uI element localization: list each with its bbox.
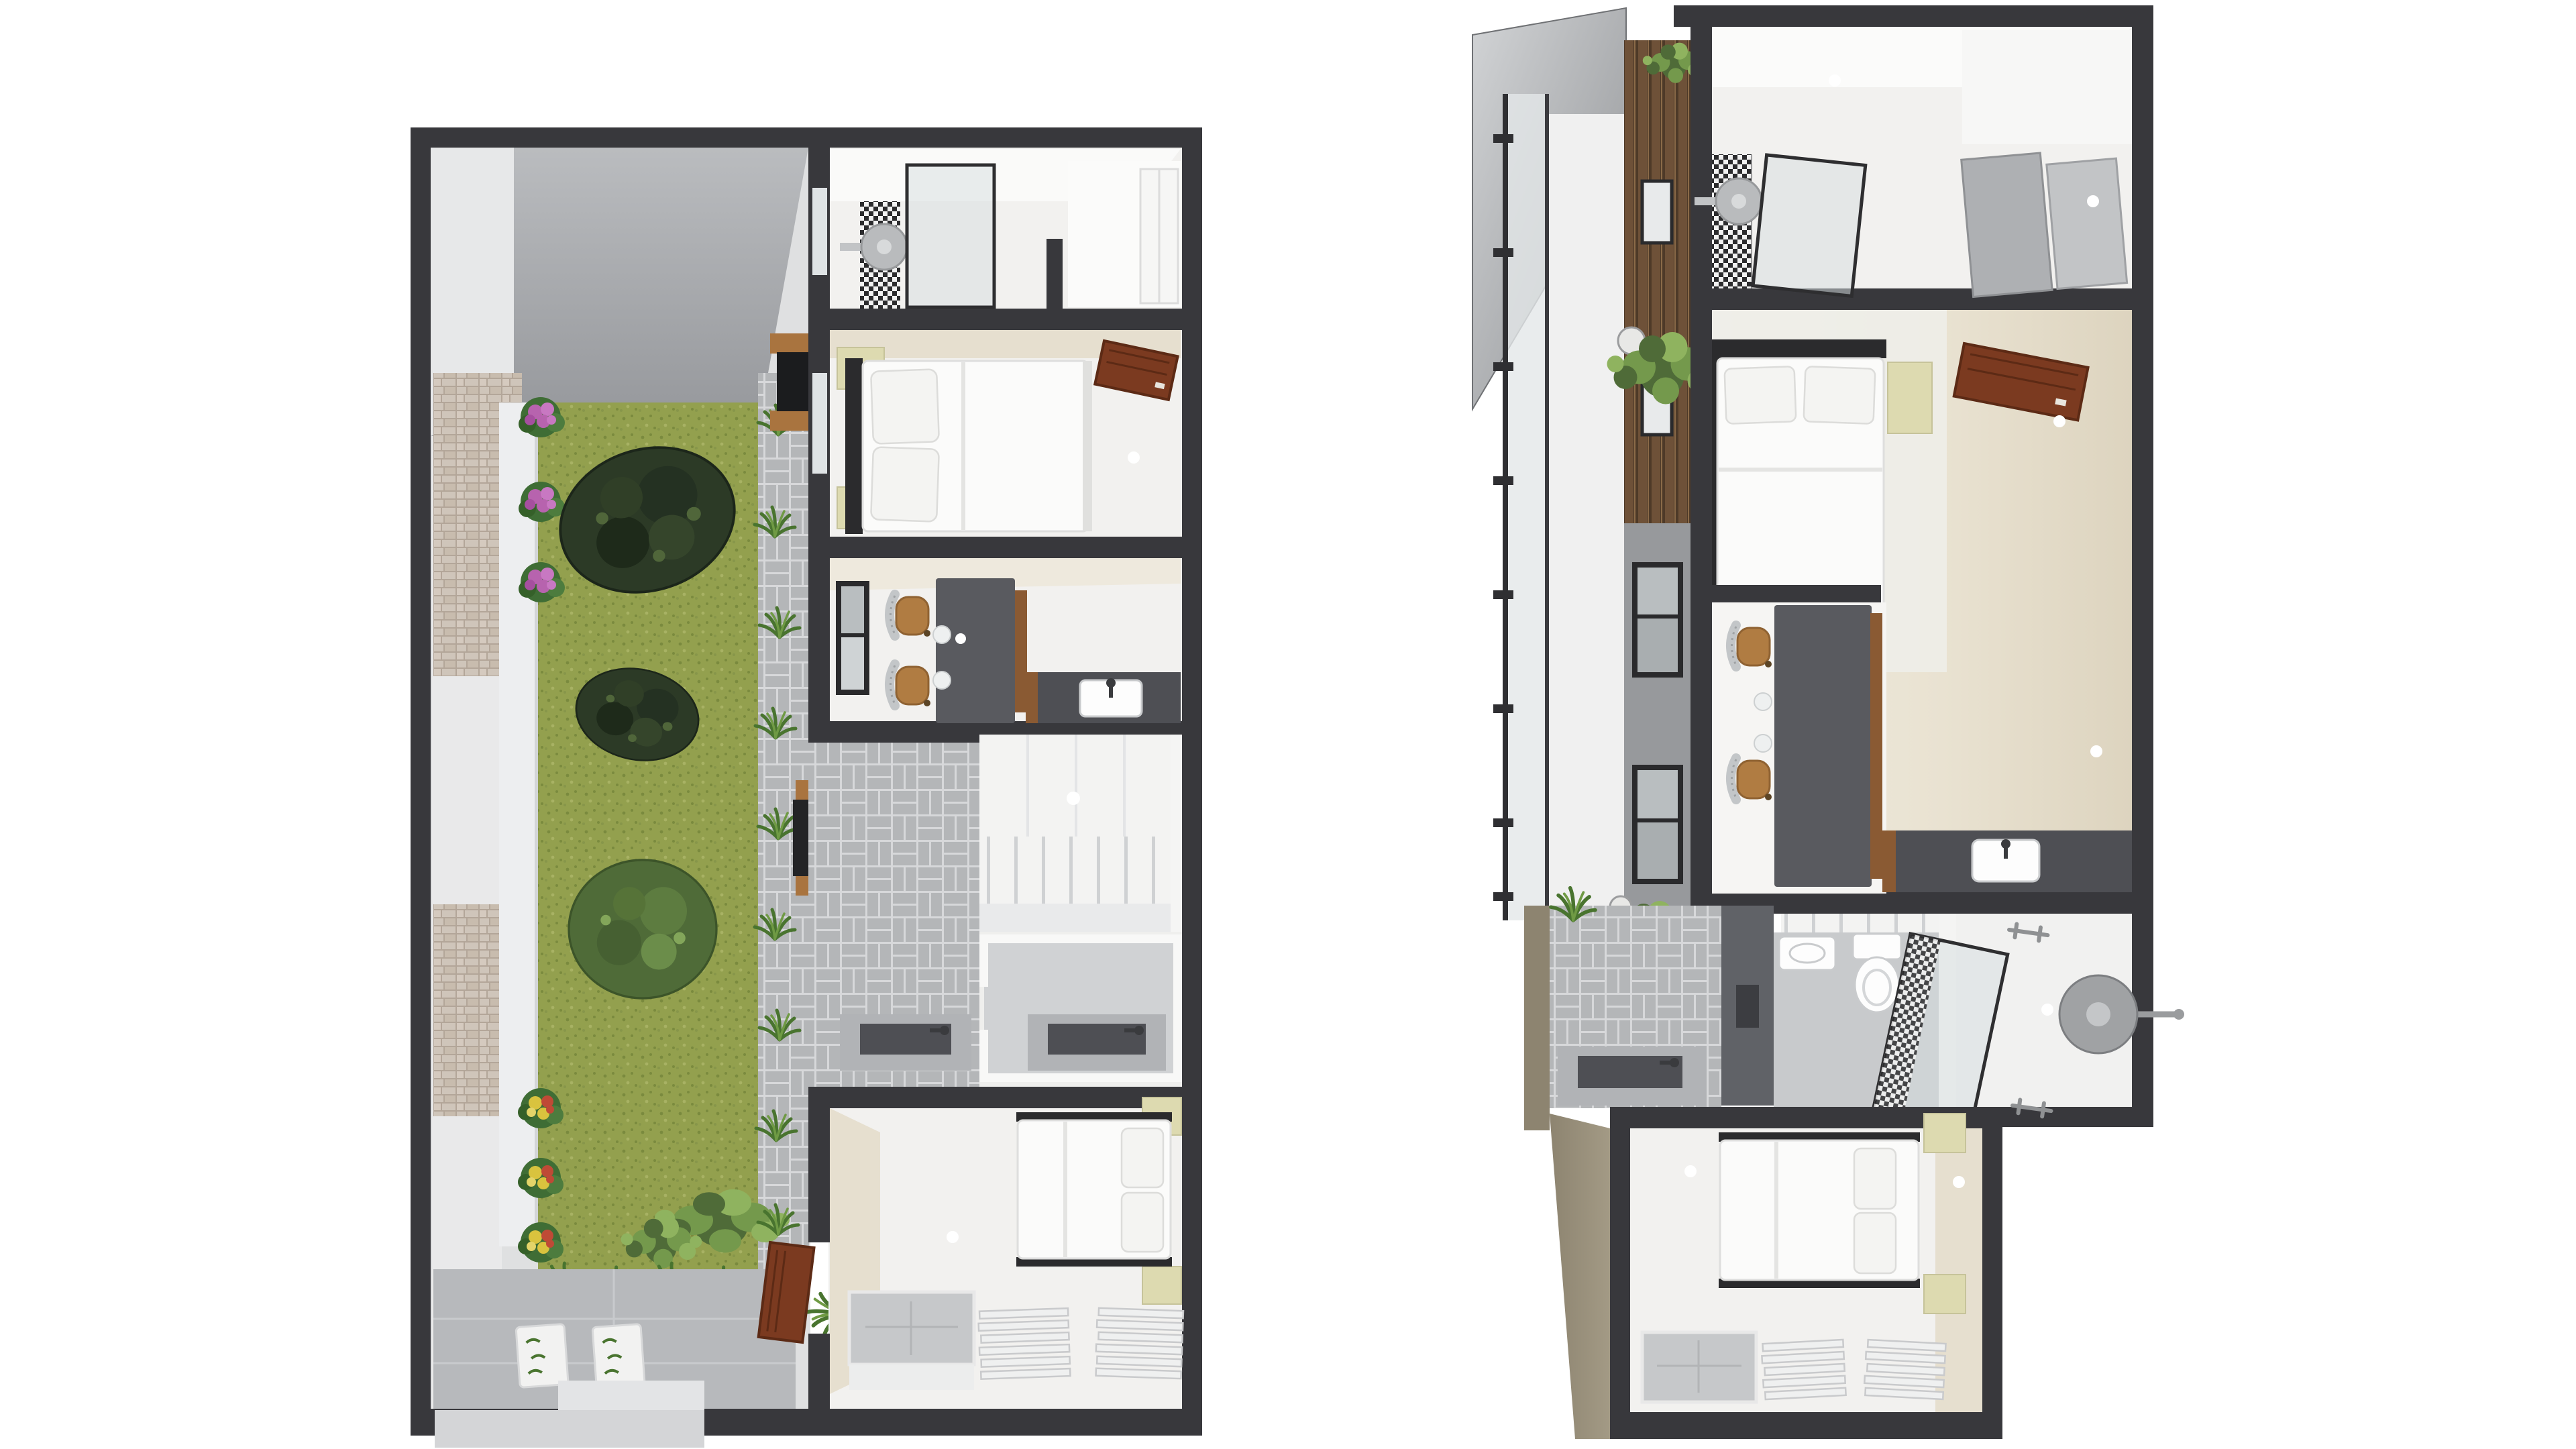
window: [836, 581, 869, 695]
wall-bedroom-dining: [808, 537, 1202, 558]
toilet: [1853, 934, 1901, 1012]
green-bush: [569, 860, 716, 998]
panel-window: [1632, 765, 1683, 884]
ceiling-light: [1128, 451, 1140, 464]
dining-chair: [890, 594, 930, 637]
pillow: [1122, 1193, 1163, 1252]
sink-counter: [1882, 830, 2132, 892]
wall-bath-master: [1690, 288, 2153, 310]
pillow: [1122, 1128, 1163, 1187]
terrace: [1524, 888, 1774, 1130]
facade: [1472, 8, 1719, 959]
upper-floor-plan: [1472, 5, 2184, 1439]
bathroom-top: [1695, 27, 2132, 297]
bathroom-divider-wall: [1046, 239, 1063, 311]
panel-window: [1632, 562, 1683, 678]
window-slot: [812, 373, 827, 474]
mug: [933, 672, 951, 689]
back-bedroom: [830, 1097, 1183, 1409]
nook-stub-wall: [1712, 585, 1881, 602]
mug: [1754, 735, 1772, 752]
walk-in-closet: [1962, 30, 2132, 297]
wood-slat-panel: [1624, 40, 1691, 523]
shower-tray: [1642, 1332, 1756, 1402]
ceiling-light: [1684, 1165, 1697, 1177]
pillow: [1804, 366, 1876, 424]
partition-window: [1736, 985, 1759, 1028]
glass-partition: [1753, 155, 1866, 296]
desk-chair: [1731, 625, 1772, 667]
study-desk: [1774, 605, 1872, 887]
planter-strip: [516, 1324, 568, 1388]
washbasin: [1779, 936, 1835, 970]
satellite-dish-icon: [2059, 975, 2184, 1053]
facade-window: [1642, 181, 1672, 243]
wardrobe-slider: [1962, 153, 2052, 297]
ceiling-light: [1067, 792, 1080, 805]
entry-step: [558, 1381, 704, 1410]
bathroom-top: [812, 149, 1181, 311]
window-slot: [812, 188, 827, 275]
front-bedroom: [812, 330, 1181, 537]
ceiling-light: [1829, 74, 1841, 87]
ceiling-light: [2041, 1004, 2053, 1016]
glass-curtain-wall: [1508, 94, 1547, 920]
pillow: [871, 447, 939, 521]
terrace-counter: [1558, 1046, 1707, 1106]
ceiling-light: [2087, 195, 2099, 207]
balcony-floor: [1549, 114, 1624, 922]
outer-wall-face: [1550, 1114, 1610, 1439]
planter-strip: [592, 1324, 645, 1388]
sink-counter: [1026, 672, 1181, 723]
mug: [933, 626, 951, 643]
ceiling-light: [955, 633, 966, 644]
floor-plan-render: [0, 0, 2576, 1449]
house-interior: [808, 127, 1202, 1422]
staircase: [979, 735, 1182, 932]
nightstand-cube: [1924, 1114, 1966, 1152]
wardrobe-slider: [2047, 158, 2127, 288]
shower-tray: [849, 1292, 974, 1390]
ceiling-light: [1953, 1176, 1965, 1188]
pillow: [871, 369, 939, 443]
glass-partition: [907, 165, 994, 307]
floor-plan-canvas: [0, 0, 2576, 1449]
wall-bath-bedroom: [808, 309, 1202, 330]
stair-hall: [808, 735, 1182, 1087]
double-bed: [837, 347, 1092, 534]
back-bedroom-upper: [1550, 1107, 2002, 1439]
ground-floor-plan: [411, 127, 1202, 1448]
nightstand-cube: [1888, 362, 1932, 433]
mug: [1754, 693, 1772, 710]
pillow: [1854, 1148, 1896, 1209]
ceiling-light: [2090, 745, 2102, 757]
dining-table: [936, 578, 1015, 723]
master-bedroom: [1712, 310, 2132, 894]
roof-edge: [1674, 5, 2153, 27]
nightstand-cube: [1924, 1275, 1966, 1313]
nightstand-cube: [1142, 1267, 1181, 1304]
kitchen-counter-left: [840, 1014, 971, 1071]
kitchen-counter-right: [1028, 1014, 1166, 1071]
study-nook: [1712, 585, 1886, 894]
stair-rail: [1171, 735, 1182, 932]
pillow: [1854, 1213, 1896, 1273]
entry-apron: [435, 1410, 704, 1448]
pillow: [1725, 366, 1796, 424]
dining-chair: [890, 664, 930, 706]
ceiling-light: [2053, 415, 2065, 427]
desk-chair: [1731, 758, 1772, 800]
dining-room: [830, 558, 1181, 723]
ceiling-light: [947, 1231, 959, 1243]
